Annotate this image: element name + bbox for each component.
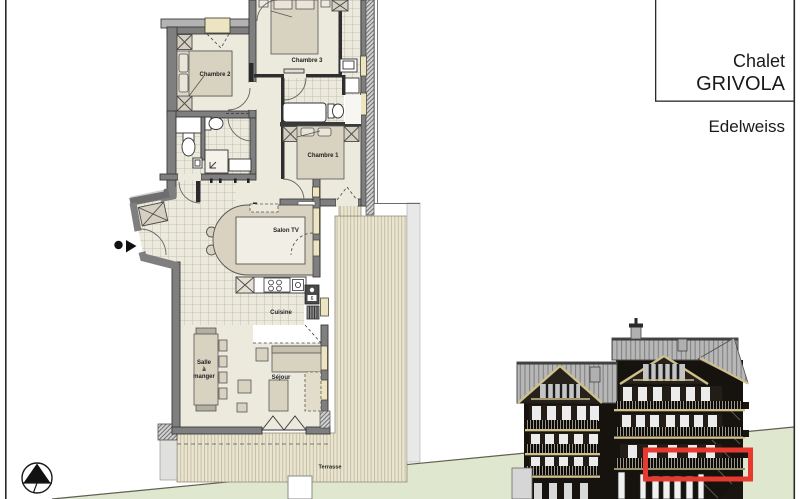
svg-text:Chalet: Chalet	[733, 51, 785, 71]
svg-text:Terrasse: Terrasse	[319, 465, 342, 471]
svg-text:manger: manger	[193, 374, 215, 380]
svg-text:Salon TV: Salon TV	[273, 228, 299, 234]
svg-text:Edelweiss: Edelweiss	[708, 117, 785, 136]
svg-text:Séjour: Séjour	[272, 375, 291, 381]
svg-text:Chambre 2: Chambre 2	[199, 72, 231, 78]
svg-text:Salle: Salle	[197, 360, 212, 366]
svg-text:Chambre 1: Chambre 1	[307, 153, 339, 159]
svg-text:Cuisine: Cuisine	[270, 310, 292, 316]
svg-text:GRIVOLA: GRIVOLA	[696, 73, 786, 95]
svg-text:Chambre 3: Chambre 3	[291, 58, 323, 64]
svg-text:6: 6	[311, 296, 314, 302]
